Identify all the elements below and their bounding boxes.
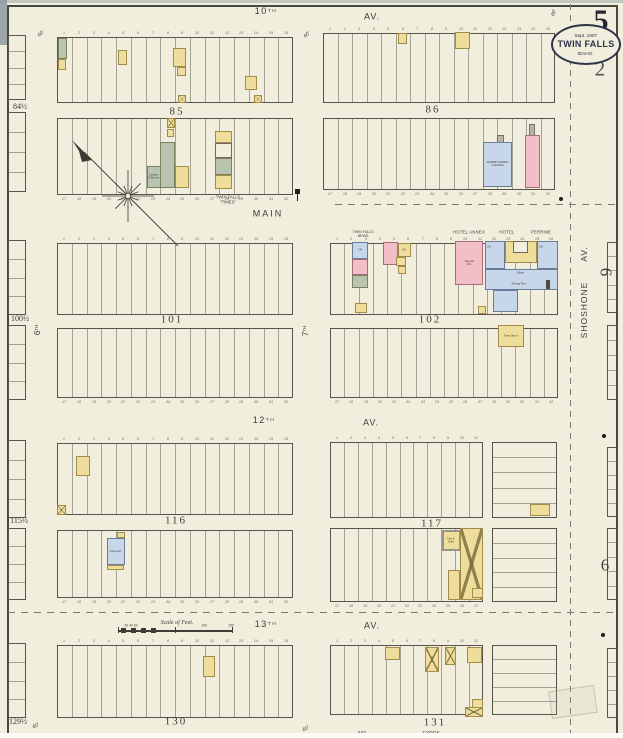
lot-number: 11 xyxy=(474,436,478,440)
scale-bar-tick xyxy=(232,627,233,633)
lot-number: 30 xyxy=(517,192,521,196)
block-116-lower-lot-line xyxy=(87,531,88,597)
lot-number: 27 xyxy=(474,604,478,608)
lot-number: 21 xyxy=(386,192,390,196)
block-116-upper-lot-line xyxy=(234,444,235,514)
block-86-lower-lot-line xyxy=(454,119,455,189)
scan-edge-corner xyxy=(0,0,7,45)
lot-number: 8 xyxy=(167,31,169,35)
sheet-badge: Sept. 1907 TWIN FALLS IDAHO. xyxy=(551,24,621,65)
block-85-lower-lot-line xyxy=(205,119,206,194)
block-86-upper-lot-line xyxy=(410,34,411,102)
map-label-102: 102 xyxy=(419,315,442,326)
block-86-lower-lot-line xyxy=(425,119,426,189)
lot-number: 7 xyxy=(152,31,154,35)
block-101-lower-lot-line xyxy=(249,329,250,397)
block-131-east xyxy=(492,645,557,715)
block-116-upper-lot-line xyxy=(264,444,265,514)
map-label-av-: AV. xyxy=(363,419,379,428)
block-101-lower-lot-line xyxy=(101,329,102,397)
building-twin-falls-news-label: Off. xyxy=(358,249,362,252)
lot-number: 14 xyxy=(254,237,258,241)
block-101-lower-lot-line xyxy=(146,329,147,397)
block-85-upper-lot-line xyxy=(146,38,147,102)
edge-block-east-row2-upper-lot-line xyxy=(608,285,617,286)
lot-number: 8 xyxy=(433,639,435,643)
block-117-upper-west-lot-line xyxy=(344,443,345,517)
block-86-upper-lot-line xyxy=(338,34,339,102)
lot-number: 4 xyxy=(108,31,110,35)
edge-block-115-upper-lot-line xyxy=(9,479,25,480)
block-85-upper-lot-line xyxy=(131,38,132,102)
building xyxy=(493,290,518,312)
block-131-west-lot-line xyxy=(358,646,359,714)
lot-number: 32 xyxy=(283,600,287,604)
match-line xyxy=(335,204,617,205)
lot-number: 28 xyxy=(488,192,492,196)
block-86-upper-lot-line xyxy=(526,34,527,102)
block-131-west-lot-line xyxy=(413,646,414,714)
lot-number: 22 xyxy=(404,604,408,608)
block-116-upper-lot-line xyxy=(116,444,117,514)
lot-number: 10 xyxy=(460,436,464,440)
lot-number: 18 xyxy=(349,604,353,608)
edge-block-100-upper-lot-line xyxy=(9,278,25,279)
lot-number: 1 xyxy=(336,436,338,440)
block-101-lower-lot-line xyxy=(264,329,265,397)
map-label-116: 116 xyxy=(165,516,187,527)
lot-number: 4 xyxy=(379,237,381,241)
map-label-60-: 60' xyxy=(302,725,310,733)
lot-number: 17 xyxy=(62,400,66,404)
building xyxy=(472,588,483,598)
lot-number: 28 xyxy=(224,600,228,604)
lot-number: 6 xyxy=(405,436,407,440)
lot-number: 12 xyxy=(488,27,492,31)
map-label-scale-of-feet-: Scale of Feet. xyxy=(161,619,194,625)
map-label-60-: 60' xyxy=(303,31,311,39)
map-label-6: 6 xyxy=(598,268,615,277)
lot-number: 29 xyxy=(506,400,510,404)
block-130-lot-line xyxy=(190,646,191,717)
block-116-upper-lot-line xyxy=(278,444,279,514)
block-116-lower-lot-line xyxy=(278,531,279,597)
lot-number: 3 xyxy=(358,27,360,31)
block-130-lot-line xyxy=(234,646,235,717)
edge-block-84-upper-lot-line xyxy=(9,84,25,85)
lot-number: 16 xyxy=(283,437,287,441)
lot-number: 4 xyxy=(373,27,375,31)
map-label-130: 130 xyxy=(165,717,188,728)
edge-block-east-row3-lower-lot-line xyxy=(608,557,617,558)
block-86-upper-lot-line xyxy=(541,34,542,102)
block-117-lower-east-lot-line xyxy=(493,572,556,573)
edge-block-east-row3-lower-lot-line xyxy=(608,586,617,587)
lot-number: 2 xyxy=(78,639,80,643)
block-102-lower-lot-line xyxy=(487,329,488,397)
block-102-upper-lot-line xyxy=(444,244,445,314)
lot-number: 13 xyxy=(239,237,243,241)
lot-number: 7 xyxy=(419,639,421,643)
block-86-lower-lot-line xyxy=(367,119,368,189)
map-label-dining-rm-: Dining Rm. xyxy=(512,283,527,286)
block-116-lower-lot-line xyxy=(190,531,191,597)
block-117-lower-east-lot-line xyxy=(493,543,556,544)
lot-number: 25 xyxy=(180,600,184,604)
lot-number: 10 xyxy=(195,31,199,35)
building-twin-falls-times xyxy=(215,131,232,143)
lot-number: 20 xyxy=(106,600,110,604)
lot-number: 9 xyxy=(181,437,183,441)
building xyxy=(58,38,67,59)
block-101-lower-lot-line xyxy=(190,329,191,397)
lot-number: 11 xyxy=(473,27,477,31)
block-102-lower-lot-line xyxy=(359,329,360,397)
block-101-upper-lot-line xyxy=(190,244,191,314)
map-label-hotel-annex: HOTEL ANNEX xyxy=(453,230,485,234)
map-label-129-: 129½ xyxy=(9,718,27,726)
building xyxy=(215,158,232,175)
block-86-upper-lot-line xyxy=(439,34,440,102)
lot-number: 5 xyxy=(392,436,394,440)
lot-number: 15 xyxy=(531,27,535,31)
block-102-lower-lot-line xyxy=(458,329,459,397)
edge-block-east-row4-lot-line xyxy=(608,704,617,705)
lot-number: 10 xyxy=(460,639,464,643)
map-label-115-: 115½ xyxy=(10,517,28,525)
block-131-west xyxy=(330,645,483,715)
block-117-upper-west-lot-line xyxy=(469,443,470,517)
building xyxy=(385,647,400,660)
map-label-main: MAIN xyxy=(253,210,284,219)
lot-number: 31 xyxy=(531,192,535,196)
block-130-lot-line xyxy=(116,646,117,717)
block-117-upper-west xyxy=(330,442,483,518)
building xyxy=(254,95,262,103)
lot-number: 2 xyxy=(350,436,352,440)
block-85-lower-lot-line xyxy=(249,119,250,194)
lot-number: 24 xyxy=(165,400,169,404)
lot-number: 30 xyxy=(254,197,258,201)
hydrant-dot xyxy=(601,633,605,637)
lot-number: 2 xyxy=(344,27,346,31)
block-101-lower-lot-line xyxy=(131,329,132,397)
map-label-shoshone: SHOSHONE xyxy=(580,282,589,339)
block-116-lower-lot-line xyxy=(205,531,206,597)
block-131-west-lot-line xyxy=(372,646,373,714)
block-117-upper-east-lot-line xyxy=(493,457,556,458)
map-label-6: 6 xyxy=(601,557,610,574)
block-102-lower-lot-line xyxy=(401,329,402,397)
edge-block-east-row3-upper-lot-line xyxy=(608,503,617,504)
lot-number: 3 xyxy=(93,437,95,441)
building xyxy=(215,175,232,189)
map-label-86: 86 xyxy=(426,105,441,116)
lot-number: 22 xyxy=(136,600,140,604)
lot-number: 27 xyxy=(210,600,214,604)
edge-block-84-lower-lot-line xyxy=(9,132,25,133)
lot-number: 2 xyxy=(78,31,80,35)
block-130-lot-line xyxy=(175,646,176,717)
block-116-upper-lot-line xyxy=(131,444,132,514)
building xyxy=(546,280,550,289)
lot-number: 30 xyxy=(520,400,524,404)
map-label-av-: AV. xyxy=(364,13,380,22)
lot-number: 7 xyxy=(416,27,418,31)
block-101-upper-lot-line xyxy=(234,244,235,314)
block-131-east-lot-line xyxy=(493,673,556,674)
block-101-lower-lot-line xyxy=(116,329,117,397)
block-117-lower-west-lot-line xyxy=(344,529,345,601)
building xyxy=(245,76,257,90)
building xyxy=(478,306,486,314)
block-130-lot-line xyxy=(219,646,220,717)
lot-number: 3 xyxy=(93,31,95,35)
block-117-upper-west-lot-line xyxy=(455,443,456,517)
block-117-upper-east-lot-line xyxy=(493,488,556,489)
block-130-lot-line xyxy=(146,646,147,717)
block-102-lower-lot-line xyxy=(373,329,374,397)
lot-number: 11 xyxy=(474,639,478,643)
block-117-upper-west-lot-line xyxy=(441,443,442,517)
block-116-lower-lot-line xyxy=(101,531,102,597)
lot-number: 24 xyxy=(432,604,436,608)
building xyxy=(425,647,439,672)
building xyxy=(167,118,175,128)
lot-number: 23 xyxy=(151,400,155,404)
lot-number: 32 xyxy=(546,192,550,196)
building-label: Off. xyxy=(402,248,406,251)
block-130-lot-line xyxy=(101,646,102,717)
lot-number: 28 xyxy=(224,400,228,404)
building xyxy=(173,48,186,67)
building-presbyterian-church: PRESBYTERIANCHURCH xyxy=(483,142,512,187)
block-85-lower-lot-line xyxy=(264,119,265,194)
block-101-upper-lot-line xyxy=(116,244,117,314)
block-116-upper-lot-line xyxy=(249,444,250,514)
sheet-border-top xyxy=(7,5,617,7)
block-85-upper-lot-line xyxy=(264,38,265,102)
map-label-85: 85 xyxy=(170,107,185,118)
lot-number: 21 xyxy=(121,400,125,404)
lot-number: 32 xyxy=(283,197,287,201)
building xyxy=(467,647,482,663)
lot-number: 6 xyxy=(402,27,404,31)
lot-number: 26 xyxy=(463,400,467,404)
lot-number: 26 xyxy=(195,400,199,404)
map-label-13: 13TH xyxy=(255,620,278,630)
map-label-hotel: HOTEL xyxy=(499,230,514,234)
block-102-upper-lot-line xyxy=(430,244,431,314)
edge-block-east-row2-lower xyxy=(607,325,618,400)
match-line xyxy=(8,612,617,613)
block-85-upper-lot-line xyxy=(160,38,161,102)
lot-number: 9 xyxy=(447,639,449,643)
lot-number: 20 xyxy=(106,400,110,404)
lot-number: 3 xyxy=(364,436,366,440)
lot-number: 17 xyxy=(335,604,339,608)
badge-date: Sept. 1907 xyxy=(575,33,598,38)
block-86-upper-lot-line xyxy=(367,34,368,102)
building xyxy=(355,303,367,313)
map-label-60-: 60' xyxy=(37,30,45,38)
block-117-lower-west-lot-line xyxy=(427,529,428,601)
edge-block-129-lot-line xyxy=(9,699,25,700)
block-116-upper-lot-line xyxy=(205,444,206,514)
lot-number: 25 xyxy=(444,192,448,196)
lot-number: 31 xyxy=(269,600,273,604)
lot-number: 15 xyxy=(269,639,273,643)
edge-block-115-lower-lot-line xyxy=(9,582,25,583)
lot-number: 19 xyxy=(92,600,96,604)
block-85-upper-lot-line xyxy=(219,38,220,102)
building xyxy=(396,257,406,266)
lot-number: 23 xyxy=(418,604,422,608)
block-117-upper-west-lot-line xyxy=(400,443,401,517)
lot-number: 1 xyxy=(63,639,65,643)
lot-number: 14 xyxy=(254,31,258,35)
block-101-lower-lot-line xyxy=(219,329,220,397)
map-label-60-: 60' xyxy=(551,9,558,17)
lot-number: 24 xyxy=(165,600,169,604)
lot-number: 26 xyxy=(459,192,463,196)
lot-number: 5 xyxy=(392,639,394,643)
lot-number: 31 xyxy=(269,400,273,404)
edge-block-84-upper-lot-line xyxy=(9,68,25,69)
map-label-60-: 60' xyxy=(32,722,40,730)
lot-number: 7 xyxy=(419,436,421,440)
block-101-upper-lot-line xyxy=(249,244,250,314)
block-116-lower-lot-line xyxy=(160,531,161,597)
lot-number: 12 xyxy=(224,437,228,441)
block-131-east-lot-line xyxy=(493,687,556,688)
lot-number: 8 xyxy=(167,639,169,643)
block-85-lower-lot-line xyxy=(278,119,279,194)
building xyxy=(76,456,90,476)
block-86-upper-lot-line xyxy=(497,34,498,102)
block-86-lower-lot-line xyxy=(381,119,382,189)
lot-number: 25 xyxy=(449,400,453,404)
edge-block-east-row3-upper-lot-line xyxy=(608,475,617,476)
lot-number: 30 xyxy=(254,400,258,404)
hydrant-dot xyxy=(559,197,563,201)
lot-number: 18 xyxy=(349,400,353,404)
lot-number: 3 xyxy=(364,639,366,643)
block-101-lower-lot-line xyxy=(160,329,161,397)
lot-number: 8 xyxy=(436,237,438,241)
lot-number: 21 xyxy=(392,400,396,404)
block-130-lot-line xyxy=(160,646,161,717)
lot-number: 22 xyxy=(136,400,140,404)
edge-block-115-upper-lot-line xyxy=(9,499,25,500)
block-85-upper-lot-line xyxy=(190,38,191,102)
block-116-upper-lot-line xyxy=(101,444,102,514)
map-label-10: 10TH xyxy=(255,7,278,17)
edge-block-115-upper-lot-line xyxy=(9,460,25,461)
block-117-lower-east-lot-line xyxy=(493,587,556,588)
block-101-lower-lot-line xyxy=(72,329,73,397)
lot-number: 27 xyxy=(210,400,214,404)
block-102-upper-lot-line xyxy=(373,244,374,314)
block-102-lower-lot-line xyxy=(344,329,345,397)
block-85-upper-lot-line xyxy=(72,38,73,102)
lot-number: 1 xyxy=(63,31,65,35)
block-116-lower-lot-line xyxy=(264,531,265,597)
block-102-lower-lot-line xyxy=(387,329,388,397)
lot-number: 4 xyxy=(108,437,110,441)
block-117-lower-east xyxy=(492,528,557,602)
block-130-lot-line xyxy=(264,646,265,717)
block-102-lower-lot-line xyxy=(530,329,531,397)
edge-block-129-lot-line xyxy=(9,681,25,682)
block-117-lower-west-lot-line xyxy=(413,529,414,601)
building xyxy=(448,570,460,600)
block-101-lower-lot-line xyxy=(278,329,279,397)
building-presbyterian-church-label: PRESBYTERIANCHURCH xyxy=(487,161,509,167)
block-131-west-lot-line xyxy=(344,646,345,714)
map-label--times-: "TIMES" xyxy=(220,200,236,204)
block-102-upper-lot-line xyxy=(416,244,417,314)
lot-number: 12 xyxy=(224,639,228,643)
lot-number: 16 xyxy=(546,27,550,31)
building-carpenter-shop-label: Carpenter xyxy=(110,550,122,553)
scale-bar-segment xyxy=(141,628,146,633)
scale-bar-segment xyxy=(121,628,126,633)
lot-number: 19 xyxy=(92,400,96,404)
block-101-upper-lot-line xyxy=(219,244,220,314)
block-116-upper-lot-line xyxy=(146,444,147,514)
edge-block-east-row4-lot-line xyxy=(608,662,617,663)
lot-number: 7 xyxy=(152,639,154,643)
edge-block-84-lower-lot-line xyxy=(9,172,25,173)
block-85-upper-lot-line xyxy=(249,38,250,102)
block-86-upper-lot-line xyxy=(425,34,426,102)
lot-number: 2 xyxy=(350,237,352,241)
lot-number: 13 xyxy=(502,27,506,31)
block-117-upper-west-lot-line xyxy=(386,443,387,517)
block-101-upper-lot-line xyxy=(205,244,206,314)
map-label-av-: AV. xyxy=(364,622,380,631)
map-label-12: 12TH xyxy=(253,416,276,426)
block-101-upper-lot-line xyxy=(87,244,88,314)
lot-number: 11 xyxy=(210,31,214,35)
edge-block-east-row3-lower-lot-line xyxy=(608,571,617,572)
lot-number: 10 xyxy=(195,437,199,441)
scale-bar-tick xyxy=(175,627,176,633)
block-116-upper-lot-line xyxy=(87,444,88,514)
block-130-lot-line xyxy=(278,646,279,717)
map-label-off-: Off. xyxy=(487,246,492,249)
map-label-84-: 84½ xyxy=(13,103,27,111)
block-117-lower-east-lot-line xyxy=(493,558,556,559)
block-117-upper-west-lot-line xyxy=(413,443,414,517)
block-86-upper-lot-line xyxy=(352,34,353,102)
block-86-lower-lot-line xyxy=(468,119,469,189)
lot-number: 27 xyxy=(473,192,477,196)
block-130-lot-line xyxy=(72,646,73,717)
block-117-lower-west-lot-line xyxy=(372,529,373,601)
lot-number: 25 xyxy=(446,604,450,608)
edge-block-100-upper-lot-line xyxy=(9,296,25,297)
building xyxy=(445,647,456,665)
lot-number: 26 xyxy=(195,197,199,201)
building xyxy=(57,505,66,515)
lot-number: 32 xyxy=(549,400,553,404)
edge-block-east-row3-upper-lot-line xyxy=(608,489,617,490)
lot-number: 9 xyxy=(181,31,183,35)
block-117-upper-west-lot-line xyxy=(372,443,373,517)
hydrant-dot xyxy=(602,434,606,438)
